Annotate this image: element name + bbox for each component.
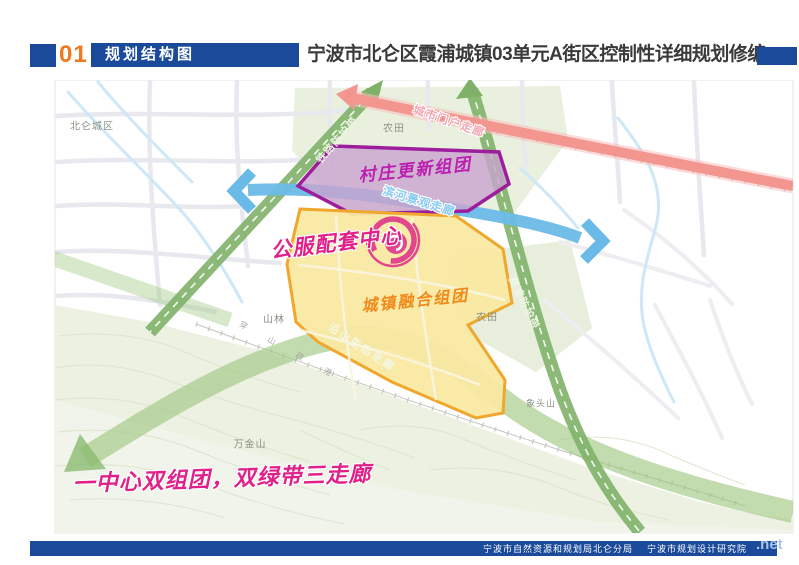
header-accent-square: [30, 44, 56, 67]
village-renewal-zone: [298, 146, 509, 214]
watermark: .net: [756, 536, 783, 553]
section-number: 01: [59, 41, 88, 69]
header: 01 规划结构图 宁波市北仑区霞浦城镇03单元A街区控制性详细规划修编: [0, 0, 799, 80]
header-accent-block: [757, 47, 797, 65]
plan-sheet: 北仑城区 农田 农田 山林 万金山 象头山 穿山疏港 铁路防护带 高速防护带 沿…: [0, 0, 799, 565]
section-title-bar: 规划结构图: [91, 43, 299, 67]
page-title: 宁波市北仑区霞浦城镇03单元A街区控制性详细规划修编: [307, 42, 753, 68]
footer-org-institute: 宁波市规划设计研究院: [647, 542, 747, 555]
footer-bar: 宁波市自然资源和规划局北仑分局 宁波市规划设计研究院: [30, 541, 777, 556]
planning-map: [0, 0, 799, 565]
footer-org-bureau: 宁波市自然资源和规划局北仑分局: [483, 542, 633, 555]
